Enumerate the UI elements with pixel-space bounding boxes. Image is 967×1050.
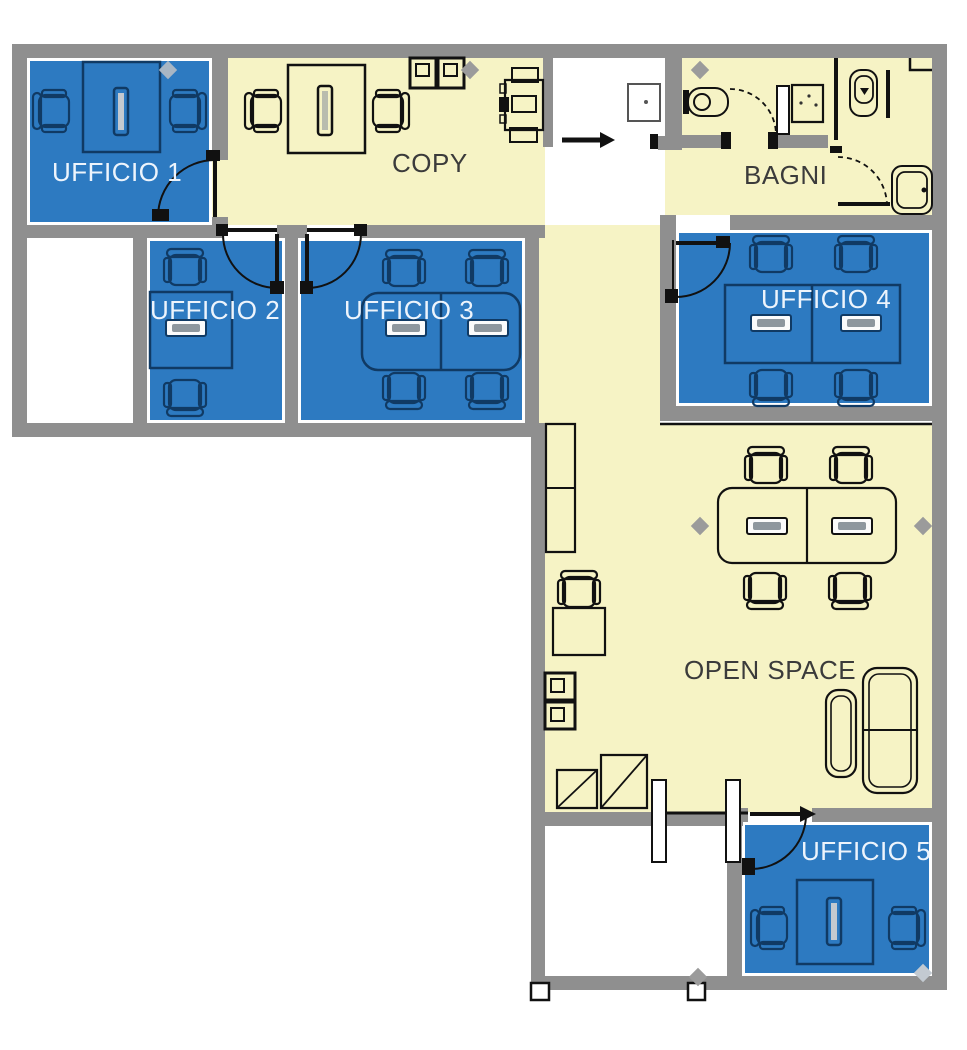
door-ufficio-2 [216,224,284,294]
label-ufficio-4: UFFICIO 4 [761,285,891,314]
door-bagni-stall [721,89,778,149]
corner-marker [688,983,705,1000]
label-bagni: BAGNI [744,161,827,190]
chair-icon [383,373,425,409]
label-ufficio-3: UFFICIO 3 [344,296,474,325]
pillar [726,780,740,862]
chair-icon [558,571,600,607]
label-ufficio-1: UFFICIO 1 [52,158,182,187]
desk [797,880,873,964]
keyboard-icon [747,518,787,534]
door-entry-sliding [562,132,658,149]
cabinet [546,424,575,552]
diamond-marker [159,61,177,79]
side-table [553,608,605,655]
door-ufficio-3 [300,224,367,294]
chair-icon [830,447,872,483]
chair-icon [751,907,787,949]
diamond-marker [691,61,709,79]
label-open-space: OPEN SPACE [684,656,856,685]
chair-icon [170,90,206,132]
desk [83,62,160,152]
wall-line [910,58,932,70]
chair-icon [164,249,206,285]
chair-icon [466,250,508,286]
chair-icon [745,447,787,483]
keyboard-icon [832,518,872,534]
chair-icon [744,573,786,609]
chair-icon [889,907,925,949]
copier-icon [499,68,543,142]
pillar [652,780,666,862]
chair-icon [164,380,206,416]
chair-icon [829,573,871,609]
label-ufficio-2: UFFICIO 2 [150,296,280,325]
chair-icon [466,373,508,409]
chair-icon [245,90,281,132]
printer-icon [545,673,575,729]
sofa [826,668,917,793]
shower-icon [777,85,823,134]
diamond-marker [691,517,709,535]
keyboard-icon [751,315,791,331]
desk [288,65,365,153]
shower-icon [628,84,660,121]
label-ufficio-5: UFFICIO 5 [801,837,931,866]
corner-marker [531,983,549,1000]
printer-icon [410,58,464,88]
diamond-marker [914,517,932,535]
chair-icon [373,90,409,132]
floor-plan: UFFICIO 1 COPY BAGNI UFFICIO 2 UFFICIO 3… [0,0,967,1050]
storage-box [557,755,647,808]
chair-icon [750,236,792,272]
door-ufficio-4 [665,236,730,303]
toilet-icon [683,88,728,116]
chair-icon [33,90,69,132]
door-bagni-bath [830,146,890,206]
keyboard-icon [841,315,881,331]
toilet-icon [850,70,877,116]
chair-icon [383,250,425,286]
chair-icon [750,370,792,406]
diamond-marker [914,964,932,982]
chair-icon [835,370,877,406]
sink-icon [892,166,932,214]
label-copy: COPY [392,149,468,178]
chair-icon [835,236,877,272]
